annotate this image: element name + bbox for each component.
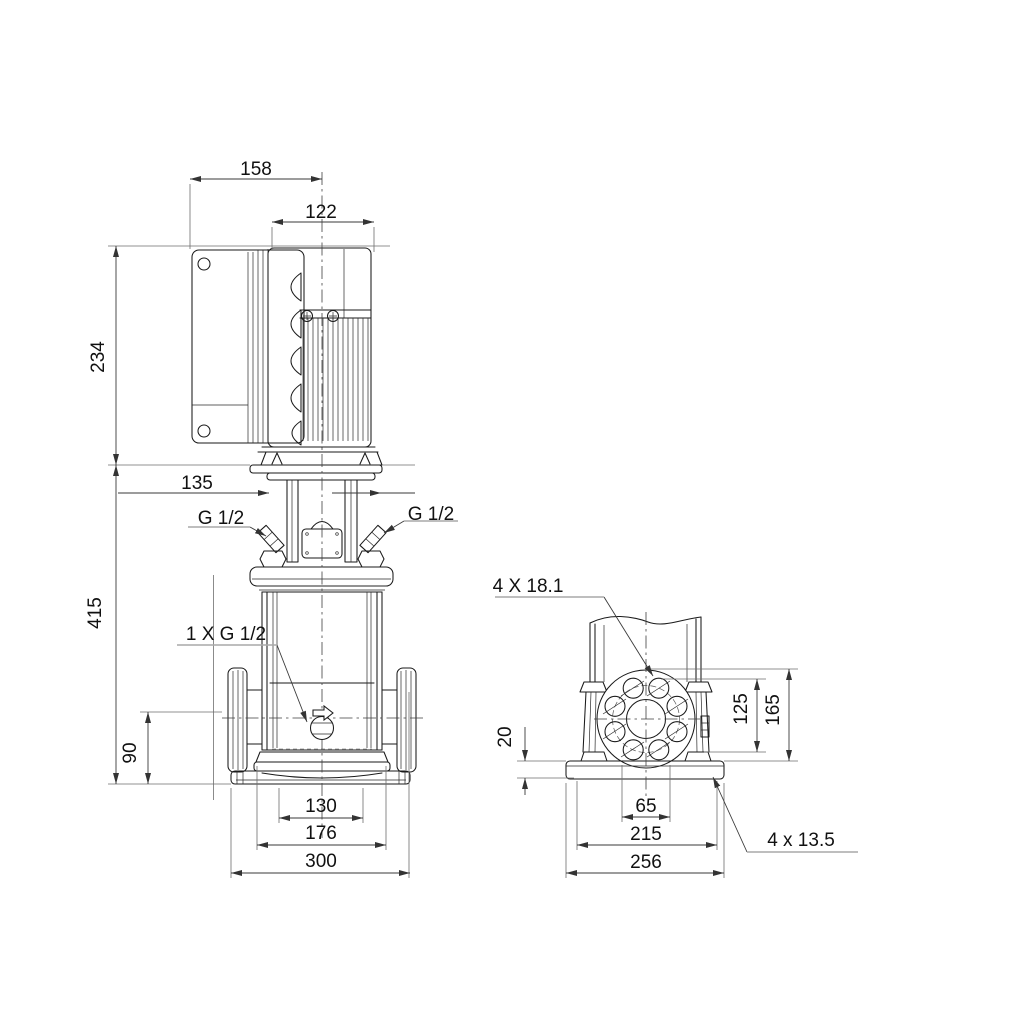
dim-bore-width: 65: [635, 796, 656, 817]
head-flange-plate: [250, 567, 393, 586]
stool-leg-left: [287, 480, 298, 562]
dim-hole-height-outer: 165: [763, 694, 784, 726]
dim-pump-height: 415: [85, 597, 106, 629]
label-flange-holes: 4 X 18.1: [493, 576, 564, 597]
label-base-holes: 4 x 13.5: [767, 830, 835, 851]
dim-hole-height-inner: 125: [731, 693, 752, 725]
dim-base-depth: 256: [630, 852, 662, 873]
label-gauge-right: G 1/2: [408, 504, 454, 525]
motor-fins: [303, 318, 368, 441]
box-screw-top: [198, 258, 210, 270]
dim-base-width: 300: [305, 851, 337, 872]
gauge-plug-left: [258, 525, 286, 567]
pump-base: [231, 762, 410, 784]
leader-gauge-right: [384, 521, 404, 533]
dim-column-width: 176: [305, 823, 337, 844]
motor-body: [268, 248, 371, 447]
dim-top-width: 158: [240, 159, 272, 180]
label-drain: 1 X G 1/2: [186, 624, 266, 645]
box-screw-bottom: [198, 425, 210, 437]
gauge-plug-right: [358, 525, 386, 567]
leader-gauge-left: [250, 527, 266, 536]
dim-base-step-width: 130: [305, 796, 337, 817]
dim-head-width: 135: [181, 473, 213, 494]
dim-plate-thickness: 20: [495, 726, 516, 747]
side-view: [566, 612, 724, 800]
port-flange-right: [382, 668, 416, 772]
cable-gland-bumps: [291, 273, 301, 445]
drain-plug: [311, 706, 334, 740]
dim-bolt-spacing: 215: [630, 824, 662, 845]
leader-base-holes: [713, 777, 747, 852]
dim-port-height: 90: [120, 742, 141, 763]
pump-dimension-drawing: 158 122 234 135 415 90 130 176 300 G 1/2…: [0, 0, 1024, 1024]
extension-lines: [108, 184, 798, 878]
port-flange-left: [228, 668, 262, 772]
dim-motor-height: 234: [88, 341, 109, 373]
drawing-canvas: 158 122 234 135 415 90 130 176 300 G 1/2…: [0, 0, 1024, 1024]
dim-motor-width: 122: [305, 202, 337, 223]
label-gauge-left: G 1/2: [198, 508, 244, 529]
